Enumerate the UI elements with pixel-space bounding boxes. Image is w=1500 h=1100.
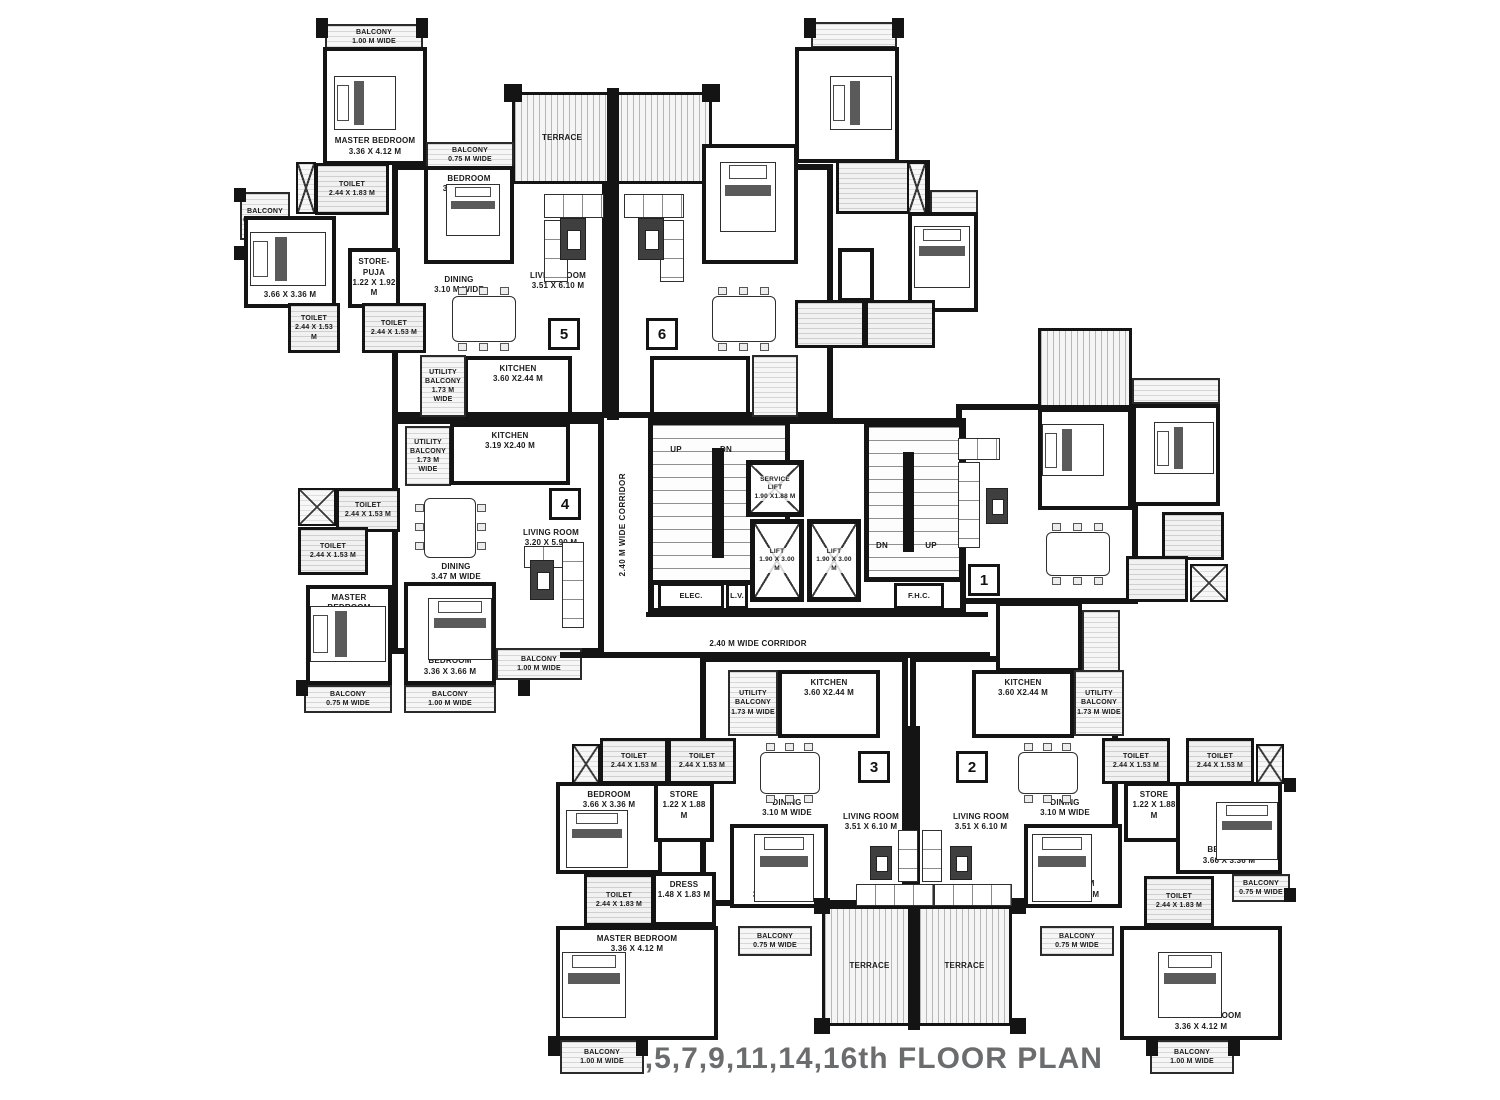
sofa xyxy=(898,830,918,882)
bed-pillow xyxy=(764,837,805,850)
bed-blanket xyxy=(725,185,770,196)
stair-right-up: UP xyxy=(916,540,946,552)
u1-toilet-b xyxy=(1126,556,1188,602)
wall-pier xyxy=(416,18,428,38)
bed-pillow xyxy=(1168,955,1211,968)
tv-unit xyxy=(638,218,664,260)
bed xyxy=(720,162,776,232)
u2-living-label: LIVING ROOM 3.51 X 6.10 M xyxy=(953,812,1009,833)
u2-toilet-b: TOILET 2.44 X 1.53 M xyxy=(1186,738,1254,784)
u1-utility xyxy=(1082,610,1120,672)
stair-right-dn-label: DN xyxy=(876,541,888,551)
dining-chair xyxy=(1062,743,1071,751)
bed-pillow xyxy=(833,85,845,121)
dining-chair xyxy=(766,795,775,803)
u1-shaft xyxy=(1190,564,1228,602)
u3-store-label: STORE 1.22 X 1.88 M xyxy=(658,790,710,821)
u5-balcony-mid-label: BALCONY 0.75 M WIDE xyxy=(448,146,492,164)
unit-badge-6: 6 xyxy=(646,318,678,350)
unit-badge-1: 1 xyxy=(968,564,1000,596)
bed-pillow xyxy=(572,955,615,968)
dining-chair xyxy=(1062,795,1071,803)
u3-dress: DRESS 1.48 X 1.83 M xyxy=(652,872,716,926)
bed-blanket xyxy=(568,973,620,983)
wall-pier xyxy=(518,680,530,696)
u2-store: STORE 1.22 X 1.88 M xyxy=(1124,782,1184,842)
bed xyxy=(1042,424,1104,476)
stair-right-dn: DN xyxy=(867,540,897,552)
u2-toilet-a: TOILET 2.44 X 1.53 M xyxy=(1102,738,1170,784)
bed xyxy=(310,606,386,662)
u5-toilet-a-label: TOILET 2.44 X 1.83 M xyxy=(329,180,375,198)
u2-kitchen: KITCHEN 3.60 X2.44 M xyxy=(972,670,1074,738)
u6-store xyxy=(838,248,874,302)
bed xyxy=(1158,952,1222,1018)
u3-balcony-a: BALCONY 0.75 M WIDE xyxy=(738,926,812,956)
u2-toilet-c: TOILET 2.44 X 1.83 M xyxy=(1144,876,1214,926)
sofa xyxy=(856,884,934,906)
u4-toilet-b-label: TOILET 2.44 X 1.53 M xyxy=(310,542,356,560)
stair-left-up: UP xyxy=(660,444,692,456)
u3-kitchen-label: KITCHEN 3.60 X2.44 M xyxy=(804,678,854,699)
tv-screen xyxy=(992,499,1004,516)
dining-chair xyxy=(458,287,467,295)
u5-kitchen-label: KITCHEN 3.60 X2.44 M xyxy=(493,364,543,385)
bed-pillow xyxy=(1157,431,1169,466)
u3-bedroom-2-label: BEDROOM 3.66 X 3.36 M xyxy=(583,790,635,811)
wall-pier xyxy=(234,188,246,202)
bed xyxy=(250,232,326,286)
u1-toilet-a xyxy=(1162,512,1224,560)
u4-shaft xyxy=(298,488,336,526)
wall-pier xyxy=(316,18,328,38)
dining-chair xyxy=(415,542,424,550)
u1-kitchen xyxy=(996,602,1082,672)
sofa xyxy=(934,884,1012,906)
bed-blanket xyxy=(1174,427,1183,469)
bed xyxy=(1154,422,1214,474)
wall-pier xyxy=(814,898,830,914)
lift-2-label: LIFT 1.90 X 3.00 M xyxy=(812,548,856,573)
bed-pillow xyxy=(1042,837,1083,850)
lv-room-label: L.V. xyxy=(730,591,744,601)
u2-utility-label: UTILITY BALCONY 1.73 M WIDE xyxy=(1077,689,1121,716)
u6-toilet-b xyxy=(795,300,865,348)
bed-blanket xyxy=(335,611,347,656)
service-lift-label: SERVICE LIFT 1.90 X1.88 M xyxy=(753,476,796,501)
sofa xyxy=(958,438,1000,460)
u3-toilet-a-label: TOILET 2.44 X 1.53 M xyxy=(611,752,657,770)
tv-screen xyxy=(537,572,550,591)
bed-pillow xyxy=(729,165,767,179)
dining-table xyxy=(760,752,820,794)
u2-store-label: STORE 1.22 X 1.88 M xyxy=(1128,790,1180,821)
tv-unit xyxy=(950,846,972,880)
dining-chair xyxy=(1052,577,1061,585)
u4-kitchen-label: KITCHEN 3.19 X2.40 M xyxy=(485,431,535,452)
service-lift: SERVICE LIFT 1.90 X1.88 M xyxy=(746,460,804,517)
dining-chair xyxy=(1073,523,1082,531)
wall-pier xyxy=(804,18,816,38)
bed-pillow xyxy=(455,187,491,197)
sofa xyxy=(922,830,942,882)
stair-right xyxy=(864,422,964,582)
lift-1: LIFT 1.90 X 3.00 M xyxy=(750,519,804,602)
dining-chair xyxy=(766,743,775,751)
wall-pier xyxy=(1010,898,1026,914)
wall-pier xyxy=(814,1018,830,1034)
u3-toilet-b: TOILET 2.44 X 1.53 M xyxy=(668,738,736,784)
bed-blanket xyxy=(572,829,622,838)
wall-pier xyxy=(1284,778,1296,792)
dining-chair xyxy=(760,287,769,295)
u3-store: STORE 1.22 X 1.88 M xyxy=(654,782,714,842)
bed xyxy=(830,76,892,130)
dining-chair xyxy=(1073,577,1082,585)
bed xyxy=(566,810,628,868)
unit-badge-3: 3 xyxy=(858,751,890,783)
u5-toilet-b-label: TOILET 2.44 X 1.53 M xyxy=(291,314,337,341)
u6-kitchen xyxy=(650,356,750,416)
u2-balcony-b-label: BALCONY 1.00 M WIDE xyxy=(1170,1048,1214,1066)
wall xyxy=(903,452,914,552)
bed-blanket xyxy=(1038,856,1087,867)
bed-blanket xyxy=(354,81,364,125)
u5-toilet-a: TOILET 2.44 X 1.83 M xyxy=(315,163,389,215)
wall-pier xyxy=(1284,888,1296,902)
terrace-bottom-left: TERRACE xyxy=(822,906,917,1026)
bed-blanket xyxy=(434,618,486,628)
wall-pier xyxy=(234,246,246,260)
tv-unit xyxy=(870,846,892,880)
u5-utility-label: UTILITY BALCONY 1.73 M WIDE xyxy=(422,368,464,404)
u3-balcony-a-label: BALCONY 0.75 M WIDE xyxy=(753,932,797,950)
u2-balcony-b: BALCONY 1.00 M WIDE xyxy=(1150,1040,1234,1074)
terrace-top-left: TERRACE xyxy=(512,92,612,184)
elec-room: ELEC. xyxy=(658,583,724,609)
tv-screen xyxy=(567,230,581,250)
u5-master-bedroom-label: MASTER BEDROOM 3.36 X 4.12 M xyxy=(335,136,416,157)
tv-unit xyxy=(530,560,554,600)
corridor-vertical: 2.40 M WIDE CORRIDOR xyxy=(600,420,646,630)
tv-screen xyxy=(876,856,888,872)
u5-toilet-c: TOILET 2.44 X 1.53 M xyxy=(362,303,426,353)
bed-blanket xyxy=(1222,821,1272,830)
u3-shaft xyxy=(572,744,600,784)
dining-chair xyxy=(1043,795,1052,803)
u3-utility: UTILITY BALCONY 1.73 M WIDE xyxy=(728,670,778,736)
terrace-top-right xyxy=(612,92,712,184)
dining-table xyxy=(424,498,476,558)
terrace-bottom-right: TERRACE xyxy=(917,906,1012,1026)
wall xyxy=(560,652,990,658)
u6-shaft-a xyxy=(907,162,927,214)
u2-living: LIVING ROOM 3.51 X 6.10 M xyxy=(944,808,1018,836)
u2-toilet-b-label: TOILET 2.44 X 1.53 M xyxy=(1197,752,1243,770)
u4-balcony-b: BALCONY 1.00 M WIDE xyxy=(404,685,496,713)
elec-room-label: ELEC. xyxy=(679,591,702,601)
u4-kitchen: KITCHEN 3.19 X2.40 M xyxy=(450,423,570,485)
u3-kitchen: KITCHEN 3.60 X2.44 M xyxy=(778,670,880,738)
wall-pier xyxy=(636,1036,648,1056)
wall xyxy=(607,88,619,420)
wall-pier xyxy=(892,18,904,38)
terrace-bottom-left-label: TERRACE xyxy=(849,961,889,971)
sofa xyxy=(958,462,980,548)
wall-pier xyxy=(504,84,522,102)
u4-toilet-a: TOILET 2.44 X 1.53 M xyxy=(336,488,400,532)
dining-chair xyxy=(479,343,488,351)
bed-pillow xyxy=(438,601,481,613)
dining-chair xyxy=(739,287,748,295)
u2-balcony-mid-label: BALCONY 0.75 M WIDE xyxy=(1239,879,1283,897)
floor-plan: 3,5,7,9,11,14,16th FLOOR PLAN TERRACETER… xyxy=(0,0,1500,1100)
tv-unit xyxy=(986,488,1008,524)
bed xyxy=(446,184,500,236)
u1-balcony-top xyxy=(1132,378,1220,404)
floor-plan-title: 3,5,7,9,11,14,16th FLOOR PLAN xyxy=(600,1042,1130,1076)
u4-dining: DINING 3.47 M WIDE xyxy=(418,560,494,584)
wall-pier xyxy=(702,84,720,102)
tv-unit xyxy=(560,218,586,260)
u3-toilet-c-label: TOILET 2.44 X 1.83 M xyxy=(596,891,642,909)
bed xyxy=(562,952,626,1018)
u4-utility: UTILITY BALCONY 1.73 M WIDE xyxy=(405,426,451,486)
u5-utility: UTILITY BALCONY 1.73 M WIDE xyxy=(420,355,466,417)
dining-chair xyxy=(804,795,813,803)
bed xyxy=(754,834,814,902)
u5-store-puja: STORE-PUJA 1.22 X 1.92 M xyxy=(348,248,400,308)
wall xyxy=(712,448,724,558)
dining-chair xyxy=(1024,743,1033,751)
sofa xyxy=(624,194,684,218)
lift-2: LIFT 1.90 X 3.00 M xyxy=(807,519,861,602)
u5-shaft-a xyxy=(296,162,316,214)
u4-balcony-c-label: BALCONY 1.00 M WIDE xyxy=(517,655,561,673)
dining-chair xyxy=(477,504,486,512)
dining-chair xyxy=(804,743,813,751)
u2-balcony-a-label: BALCONY 0.75 M WIDE xyxy=(1055,932,1099,950)
u6-toilet-c xyxy=(865,300,935,348)
u4-toilet-b: TOILET 2.44 X 1.53 M xyxy=(298,527,368,575)
wall-pier xyxy=(1228,1036,1240,1056)
bed-pillow xyxy=(576,813,618,824)
u5-toilet-c-label: TOILET 2.44 X 1.53 M xyxy=(371,319,417,337)
u2-toilet-a-label: TOILET 2.44 X 1.53 M xyxy=(1113,752,1159,770)
dining-chair xyxy=(785,743,794,751)
stair-right-up-label: UP xyxy=(925,541,937,551)
dining-chair xyxy=(1094,577,1103,585)
dining-chair xyxy=(477,542,486,550)
dining-chair xyxy=(1043,743,1052,751)
u6-balcony-top xyxy=(811,22,897,48)
tv-screen xyxy=(645,230,659,250)
dining-chair xyxy=(500,287,509,295)
unit-badge-4: 4 xyxy=(549,488,581,520)
dining-chair xyxy=(1024,795,1033,803)
u2-balcony-a: BALCONY 0.75 M WIDE xyxy=(1040,926,1114,956)
dining-table xyxy=(1046,532,1110,576)
u4-balcony-b-label: BALCONY 1.00 M WIDE xyxy=(428,690,472,708)
dining-table xyxy=(1018,752,1078,794)
u3-dress-label: DRESS 1.48 X 1.83 M xyxy=(658,880,710,901)
u3-toilet-a: TOILET 2.44 X 1.53 M xyxy=(600,738,668,784)
lift-1-label: LIFT 1.90 X 3.00 M xyxy=(755,548,799,573)
bed-pillow xyxy=(1226,805,1268,816)
terrace-top-left-label: TERRACE xyxy=(542,133,582,143)
u1-terrace xyxy=(1038,328,1132,408)
bed-blanket xyxy=(919,246,964,256)
dining-chair xyxy=(415,504,424,512)
bed-pillow xyxy=(1045,433,1057,468)
fhc-room: F.H.C. xyxy=(894,583,944,609)
u4-utility-label: UTILITY BALCONY 1.73 M WIDE xyxy=(407,438,449,474)
u2-shaft xyxy=(1256,744,1284,784)
u3-living-label: LIVING ROOM 3.51 X 6.10 M xyxy=(843,812,899,833)
corridor-horizontal: 2.40 M WIDE CORRIDOR xyxy=(648,636,868,652)
dining-chair xyxy=(479,287,488,295)
bed-blanket xyxy=(275,237,287,281)
wall-pier xyxy=(1146,1036,1158,1056)
tv-screen xyxy=(956,856,968,872)
u4-dining-label: DINING 3.47 M WIDE xyxy=(431,562,481,583)
wall xyxy=(646,612,988,617)
bed-pillow xyxy=(923,229,961,241)
unit-badge-5: 5 xyxy=(548,318,580,350)
corridor-horizontal-label: 2.40 M WIDE CORRIDOR xyxy=(709,639,806,649)
dining-chair xyxy=(458,343,467,351)
corridor-vertical-label: 2.40 M WIDE CORRIDOR xyxy=(618,473,628,576)
u5-toilet-b: TOILET 2.44 X 1.53 M xyxy=(288,303,340,353)
lv-room: L.V. xyxy=(726,583,748,609)
bed xyxy=(428,598,492,660)
bed-blanket xyxy=(1164,973,1216,983)
u5-balcony-mid: BALCONY 0.75 M WIDE xyxy=(426,142,514,168)
wall-pier xyxy=(1010,1018,1026,1034)
fhc-room-label: F.H.C. xyxy=(908,591,930,601)
u3-utility-label: UTILITY BALCONY 1.73 M WIDE xyxy=(731,689,775,716)
dining-chair xyxy=(760,343,769,351)
bed xyxy=(1032,834,1092,902)
u3-toilet-b-label: TOILET 2.44 X 1.53 M xyxy=(679,752,725,770)
u2-utility: UTILITY BALCONY 1.73 M WIDE xyxy=(1074,670,1124,736)
bed-pillow xyxy=(313,615,328,653)
dining-table xyxy=(452,296,516,342)
u5-kitchen: KITCHEN 3.60 X2.44 M xyxy=(464,356,572,416)
dining-chair xyxy=(718,343,727,351)
u4-toilet-a-label: TOILET 2.44 X 1.53 M xyxy=(345,501,391,519)
u3-living: LIVING ROOM 3.51 X 6.10 M xyxy=(834,808,908,836)
dining-chair xyxy=(1094,523,1103,531)
u5-store-puja-label: STORE-PUJA 1.22 X 1.92 M xyxy=(352,257,396,299)
bed-blanket xyxy=(850,81,860,125)
bed xyxy=(334,76,396,130)
bed-blanket xyxy=(760,856,809,867)
bed-pillow xyxy=(337,85,349,121)
u2-toilet-c-label: TOILET 2.44 X 1.83 M xyxy=(1156,892,1202,910)
u3-balcony-b-label: BALCONY 1.00 M WIDE xyxy=(580,1048,624,1066)
u4-balcony-a: BALCONY 0.75 M WIDE xyxy=(304,685,392,713)
u4-balcony-a-label: BALCONY 0.75 M WIDE xyxy=(326,690,370,708)
terrace-bottom-right-label: TERRACE xyxy=(944,961,984,971)
dining-table xyxy=(712,296,776,342)
u3-toilet-c: TOILET 2.44 X 1.83 M xyxy=(584,874,654,926)
sofa xyxy=(544,194,604,218)
sofa xyxy=(562,542,584,628)
unit-badge-2: 2 xyxy=(956,751,988,783)
bed xyxy=(914,226,970,288)
u5-balcony-top-label: BALCONY 1.00 M WIDE xyxy=(352,28,396,46)
bed-blanket xyxy=(1062,429,1072,471)
wall-pier xyxy=(548,1036,560,1056)
stair-left-up-label: UP xyxy=(670,445,682,455)
dining-chair xyxy=(785,795,794,803)
u2-balcony-mid: BALCONY 0.75 M WIDE xyxy=(1232,874,1290,902)
dining-chair xyxy=(718,287,727,295)
u3-balcony-b: BALCONY 1.00 M WIDE xyxy=(560,1040,644,1074)
dining-chair xyxy=(739,343,748,351)
dining-chair xyxy=(415,523,424,531)
bed-pillow xyxy=(253,241,268,277)
bed xyxy=(1216,802,1278,860)
u6-utility xyxy=(752,355,798,417)
bed-blanket xyxy=(451,201,495,209)
u2-kitchen-label: KITCHEN 3.60 X2.44 M xyxy=(998,678,1048,699)
dining-chair xyxy=(477,523,486,531)
dining-chair xyxy=(1052,523,1061,531)
wall-pier xyxy=(296,680,308,696)
dining-chair xyxy=(500,343,509,351)
